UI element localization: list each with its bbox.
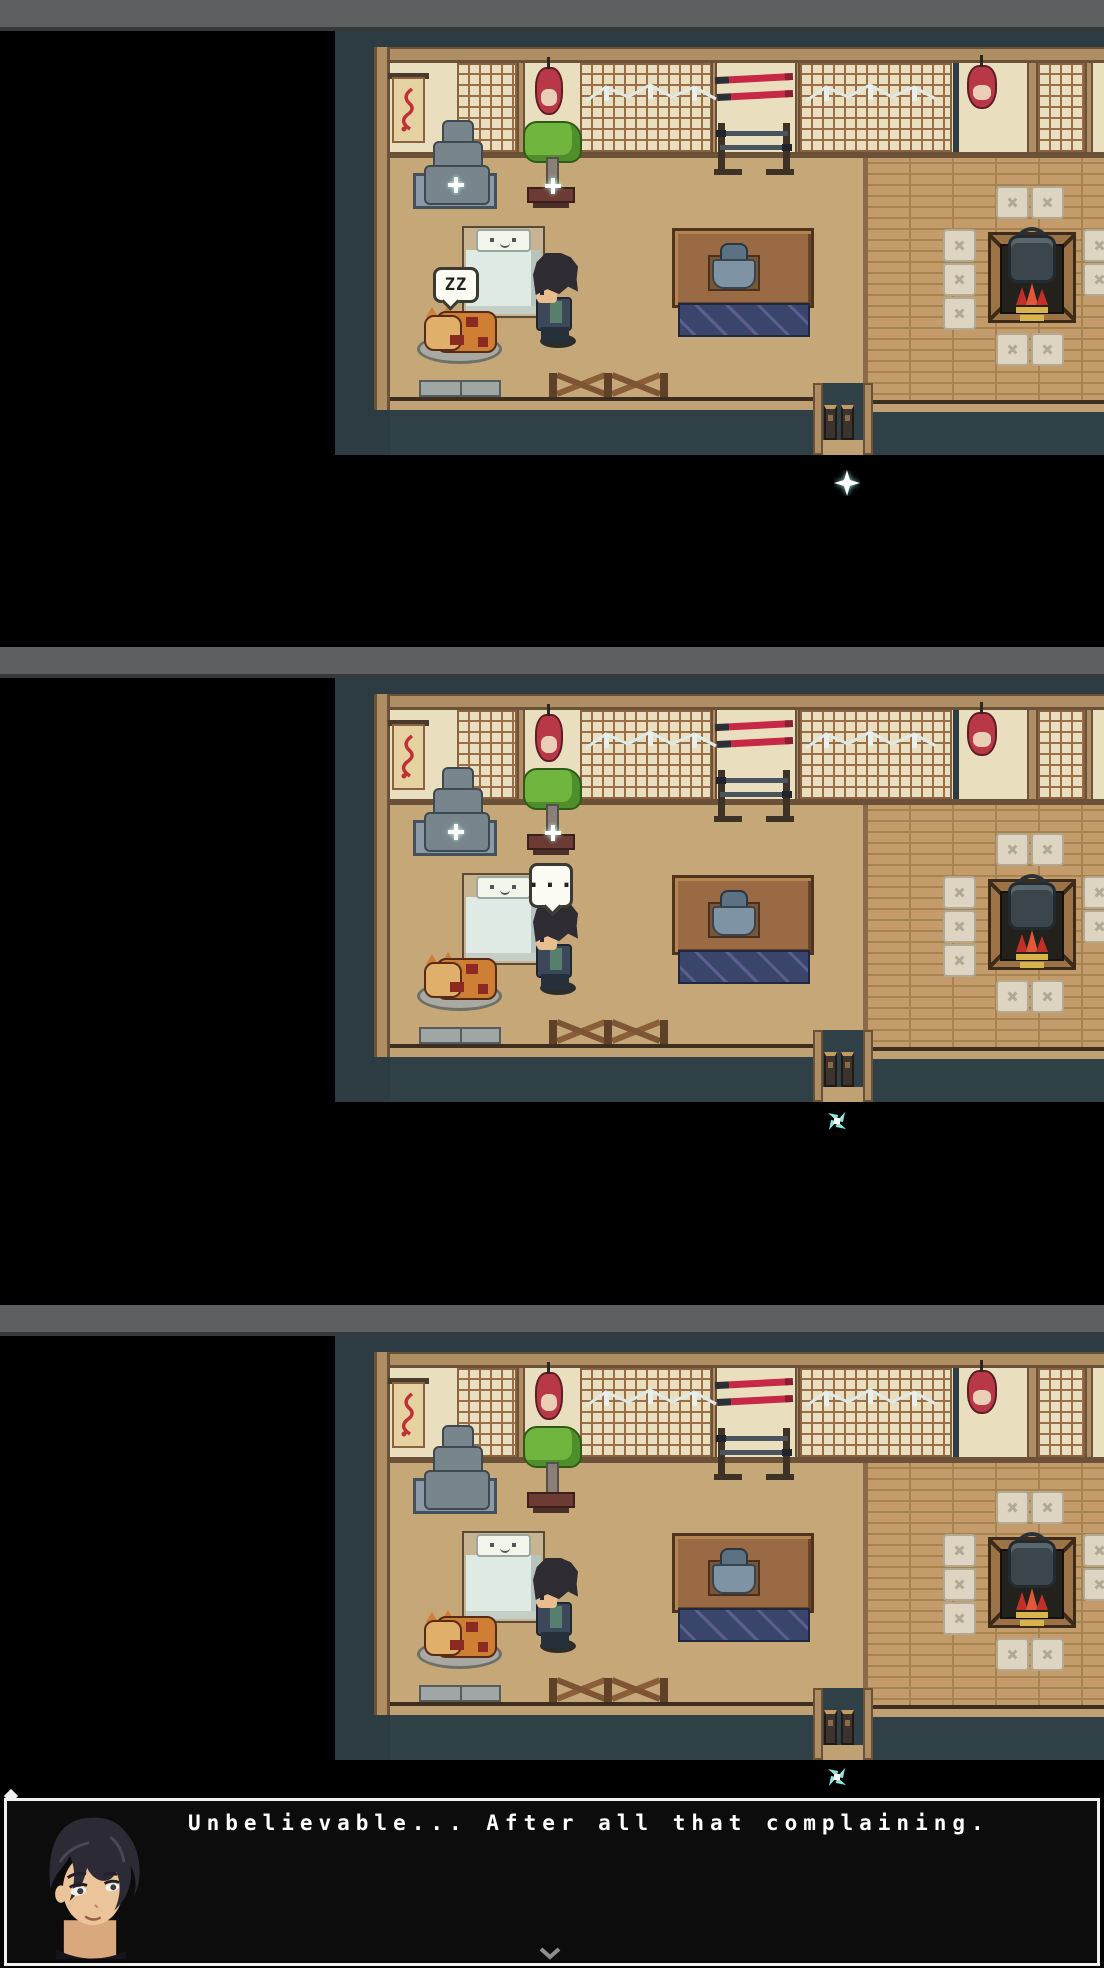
table-cloth (678, 1608, 810, 1642)
pet-patch (466, 317, 478, 327)
hanging-scroll (392, 724, 425, 790)
window-titlebar (0, 0, 1104, 31)
sparkle-plus-icon (545, 178, 561, 194)
viewport-left-mask (0, 31, 335, 455)
floor-cushion (943, 263, 976, 296)
bottom-wall-top (390, 1048, 813, 1057)
floor-cushion (1031, 1638, 1064, 1671)
bonsai-stand (533, 1508, 569, 1513)
floor-cushion (1031, 833, 1064, 866)
gold-dash (1016, 307, 1048, 313)
sword-stand-icon (712, 121, 796, 177)
bottom-wall (390, 1057, 813, 1102)
wall-gap (953, 710, 959, 799)
kettle (1008, 882, 1056, 930)
sparkle-plus-icon (448, 177, 464, 193)
gold-dash (1016, 954, 1048, 960)
bubble-text: ZZ (445, 275, 467, 295)
floor-cushion (943, 1534, 976, 1567)
left-wall-beam (374, 694, 390, 1057)
fire-icon (1012, 281, 1052, 307)
pet-patch (478, 984, 488, 994)
bottom-wall-top (873, 1709, 1104, 1717)
floor-cushion (1031, 333, 1064, 366)
pet-patch (466, 1622, 478, 1632)
rope-garland-icon (584, 722, 718, 760)
bubble-text: ... (526, 865, 575, 893)
table-cloth (678, 950, 810, 984)
red-lantern-icon (535, 714, 563, 762)
top-beam (374, 1352, 1104, 1368)
bonsai-stand (533, 203, 569, 208)
wooden-fence-icon (549, 371, 668, 397)
floor-cushion (943, 1568, 976, 1601)
bottom-wall-top (873, 404, 1104, 412)
gold-dash (1020, 315, 1044, 321)
game-frame-1: ZZ (0, 0, 1104, 455)
pet-head (424, 1620, 462, 1656)
player-legs (541, 1632, 569, 1648)
window-titlebar (0, 647, 1104, 678)
bonsai-pot (527, 1492, 575, 1508)
floor-cushion (996, 833, 1029, 866)
table-cloth (678, 303, 810, 337)
top-beam (374, 47, 1104, 63)
rope-garland-icon (804, 722, 938, 760)
rope-garland-icon (804, 75, 938, 113)
alcove-beam (813, 383, 823, 455)
floor-cushion (996, 186, 1029, 219)
hanging-scroll (392, 1382, 425, 1448)
bed-body (466, 1555, 541, 1619)
floor-mat (419, 1027, 501, 1044)
star-cursor-icon[interactable] (834, 470, 860, 496)
floor-cushion (943, 876, 976, 909)
pet-patch (478, 337, 488, 347)
bottom-wall (390, 1715, 813, 1760)
rope-garland-icon (804, 1380, 938, 1418)
shoji-panel (1038, 710, 1085, 799)
teapot (712, 1564, 756, 1594)
top-beam (374, 694, 1104, 710)
wall-beam (1027, 710, 1038, 799)
floor-cushion (1031, 186, 1064, 219)
player-legs (541, 327, 569, 343)
bottom-wall (873, 1059, 1104, 1102)
alcove-step (823, 1087, 863, 1102)
katana-display-icon (713, 1372, 797, 1414)
teapot (712, 906, 756, 936)
sword-stand-icon (712, 1426, 796, 1482)
floor-cushion (1083, 1534, 1104, 1567)
alcove-beam (813, 1030, 823, 1102)
alcove-step (823, 1745, 863, 1760)
entry-door (841, 405, 854, 440)
bottom-wall-top (390, 1706, 813, 1715)
pillow-face (476, 1534, 531, 1557)
pet-patch (450, 1640, 464, 1650)
fire-icon (1012, 928, 1052, 954)
thought-bubble: ... (529, 863, 573, 908)
entry-door (824, 1710, 837, 1745)
bonsai-trunk (546, 1462, 559, 1496)
floor-cushion (943, 944, 976, 977)
fire-icon (1012, 1586, 1052, 1612)
player-sash (550, 1606, 562, 1628)
katana-display-icon (713, 714, 797, 756)
stone-fountain (424, 1470, 490, 1510)
wooden-fence-icon (549, 1676, 668, 1702)
kettle (1008, 235, 1056, 283)
floor-cushion (943, 1602, 976, 1635)
floor-mat (419, 1685, 501, 1702)
entry-door (824, 1052, 837, 1087)
floor-cushion (943, 229, 976, 262)
hanging-scroll (392, 77, 425, 143)
shoji-panel (1038, 63, 1085, 152)
floor-cushion (1031, 1491, 1064, 1524)
floor-cushion (943, 910, 976, 943)
sparkle-plus-icon (545, 825, 561, 841)
wall-beam (1085, 710, 1093, 799)
bottom-wall (873, 412, 1104, 455)
gold-dash (1020, 962, 1044, 968)
alcove-step (823, 440, 863, 455)
kettle (1008, 1540, 1056, 1588)
dialogue-text: Unbelievable... After all that complaini… (188, 1811, 990, 1835)
pet-patch (466, 964, 478, 974)
floor-cushion (1083, 910, 1104, 943)
sparkle-plus-icon (448, 824, 464, 840)
alcove-beam (813, 1688, 823, 1760)
wooden-fence-icon (549, 1018, 668, 1044)
bottom-wall-top (873, 1051, 1104, 1059)
game-frame-3 (0, 1305, 1104, 1760)
pinwheel-cursor-icon[interactable] (824, 1108, 850, 1134)
floor-cushion (996, 1491, 1029, 1524)
bottom-wall (390, 410, 813, 455)
red-lantern-icon (967, 1370, 997, 1414)
app-root: ZZ ... (0, 0, 1104, 1968)
player-sash (550, 301, 562, 323)
chevron-down-icon[interactable] (538, 1946, 562, 1960)
gold-dash (1016, 1612, 1048, 1618)
red-lantern-icon (535, 67, 563, 115)
wall-beam (1085, 1368, 1093, 1457)
game-viewport[interactable] (0, 1336, 1104, 1760)
bed-body (466, 897, 541, 961)
bonsai-stand (533, 850, 569, 855)
sleep-bubble: ZZ (433, 267, 479, 303)
wall-gap (953, 63, 959, 152)
bottom-wall-top (390, 401, 813, 410)
pet-patch (478, 1642, 488, 1652)
floor-cushion (1083, 263, 1104, 296)
wall-gap (953, 1368, 959, 1457)
game-frame-2: ... (0, 647, 1104, 1102)
pillow-face (476, 876, 531, 899)
entry-door (841, 1052, 854, 1087)
wall-beam (1027, 63, 1038, 152)
pet-patch (450, 335, 464, 345)
viewport-left-mask (0, 1336, 335, 1760)
bottom-wall (873, 1717, 1104, 1760)
teapot (712, 259, 756, 289)
gold-dash (1020, 1620, 1044, 1626)
floor-cushion (996, 333, 1029, 366)
viewport-left-mask (0, 678, 335, 1102)
rope-garland-icon (584, 75, 718, 113)
entry-door (841, 1710, 854, 1745)
wall-beam (1085, 63, 1093, 152)
rope-garland-icon (584, 1380, 718, 1418)
pet-patch (450, 982, 464, 992)
speaker-portrait (25, 1804, 155, 1959)
floor-cushion (1031, 980, 1064, 1013)
window-titlebar (0, 1305, 1104, 1336)
red-lantern-icon (967, 65, 997, 109)
pillow-face (476, 229, 531, 252)
floor-cushion (943, 297, 976, 330)
game-viewport[interactable]: ZZ (0, 31, 1104, 455)
wall-beam (1027, 1368, 1038, 1457)
floor-cushion (1083, 1568, 1104, 1601)
floor-cushion (1083, 229, 1104, 262)
sword-stand-icon (712, 768, 796, 824)
alcove-beam (863, 1030, 873, 1102)
pet-head (424, 962, 462, 998)
entry-door (824, 405, 837, 440)
floor-cushion (996, 980, 1029, 1013)
player-sash (550, 948, 562, 970)
red-lantern-icon (535, 1372, 563, 1420)
pinwheel-cursor-icon[interactable] (824, 1764, 850, 1790)
player-legs (541, 974, 569, 990)
left-wall-beam (374, 47, 390, 410)
floor-cushion (1083, 876, 1104, 909)
shoji-panel (1038, 1368, 1085, 1457)
alcove-beam (863, 1688, 873, 1760)
alcove-beam (863, 383, 873, 455)
pet-head (424, 315, 462, 351)
katana-display-icon (713, 67, 797, 109)
floor-cushion (996, 1638, 1029, 1671)
left-wall-beam (374, 1352, 390, 1715)
floor-mat (419, 380, 501, 397)
red-lantern-icon (967, 712, 997, 756)
dialogue-box[interactable]: Unbelievable... After all that complaini… (4, 1798, 1100, 1966)
game-viewport[interactable]: ... (0, 678, 1104, 1102)
